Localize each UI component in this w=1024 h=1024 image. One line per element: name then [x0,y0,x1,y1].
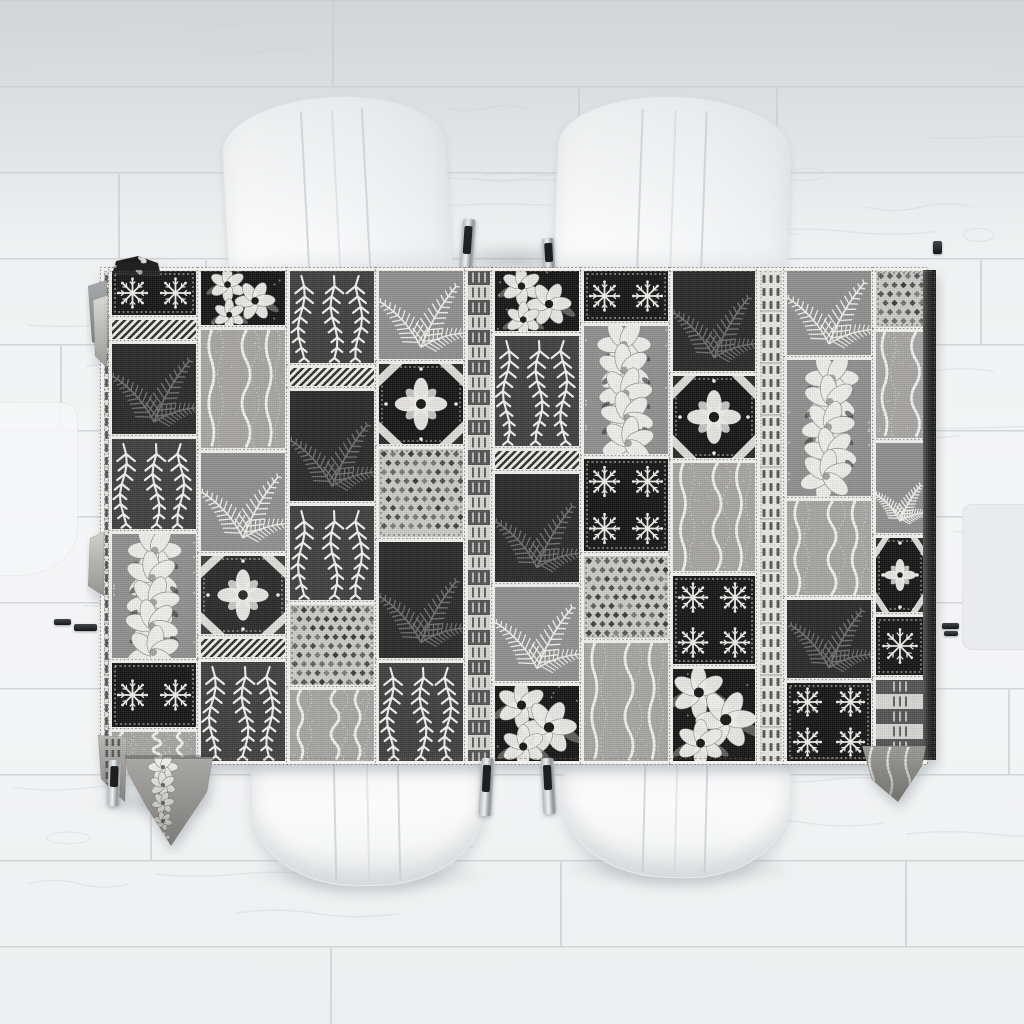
patch-tile-waves [671,462,757,572]
tablecloth-flap-corner-fold-light [93,295,108,368]
patch-tile-fern [199,452,291,552]
patch-tile-check [467,270,491,765]
patch-tile-waves [288,689,375,762]
patch-tile-waves [200,329,286,449]
patch-tile-leafcol [494,335,580,447]
product-photo-scene [0,0,1024,1024]
grain-knot [964,228,995,241]
patch-tile-fern [377,270,469,360]
patch-tile-leafcol [200,661,286,762]
patch-tile-medallion [200,555,286,635]
patch-tile-lei [786,351,872,504]
table-leg-cap [463,226,473,254]
tablecloth-flap-corner-blob [112,255,161,276]
patch-tile-waves [582,642,669,762]
table-leg [74,624,97,631]
patch-tile-medallion [378,363,464,445]
table-leg [942,623,959,629]
patch-tile-quilt [111,662,197,728]
patch-tile-medallion [672,375,756,459]
upholstery-seams [573,106,773,275]
patch-tile-quilt [583,458,669,552]
grain-knot [47,832,90,844]
grain-line [447,105,526,110]
patch-tile-waves [875,331,929,439]
patch-tile-leafcol [289,505,375,601]
table-leg [944,631,958,636]
patch-tile-fern [785,270,877,356]
patch-tile-leafcol [378,662,464,762]
table-leg [107,760,121,806]
patch-tile-fern [786,599,874,679]
patch-tile-fern [874,442,929,534]
tablecloth-flap-left-fold [88,532,104,596]
patch-tile-quilt [875,616,925,676]
patch-tile-lace [289,604,375,686]
patch-tile-floral [494,266,581,337]
chair-partial-right [962,504,1024,650]
upholstery-seams [239,105,434,277]
patch-tile-quilt [786,682,872,762]
patch-tile-rib [759,270,783,764]
grain-line [926,136,1024,138]
grain-line [234,910,398,917]
tablecloth [86,255,946,855]
patch-tile-leafcol [111,438,197,530]
patch-tile-floral [200,266,287,330]
chair-partial-left [0,402,78,576]
patch-tile-floral [490,680,583,769]
grain-line [867,204,974,211]
patch-tile-quilt [111,270,197,316]
patch-tile-floral [665,665,764,767]
tablecloth-pattern [88,255,936,847]
patch-tile-lace [583,555,669,639]
patch-tile-quilt [672,575,756,665]
table-leg-cap [482,765,491,792]
flap-crease-shadow [125,755,213,759]
grain-line [205,49,315,55]
patch-tile-medallion [875,537,925,613]
patch-tile-waves [786,500,873,596]
patch-tile-fern [671,270,761,372]
grain-line [29,880,130,887]
patch-tile-quilt [583,270,669,322]
table-leg [933,241,942,254]
table-leg-cap [543,765,552,791]
patch-tile-lace [378,448,464,538]
patch-tile-fern [377,541,469,659]
table-leg-cap [110,765,118,786]
patch-tile-fern [493,473,585,583]
patch-tile-lei [583,317,669,471]
patch-tile-lei [111,523,197,680]
grain-line [182,26,244,29]
patch-tile-fern [288,390,380,502]
tablecloth-flap-bottom-right-flap [862,746,926,802]
patch-tile-fern [493,586,585,682]
tablecloth-flap-bottom-left-flap [125,752,213,847]
patch-tile-leafcol [289,270,375,364]
patch-tile-fern [110,343,202,435]
grain-knot [785,169,826,181]
patch-tile-lace [875,270,925,328]
table-leg [54,619,71,625]
